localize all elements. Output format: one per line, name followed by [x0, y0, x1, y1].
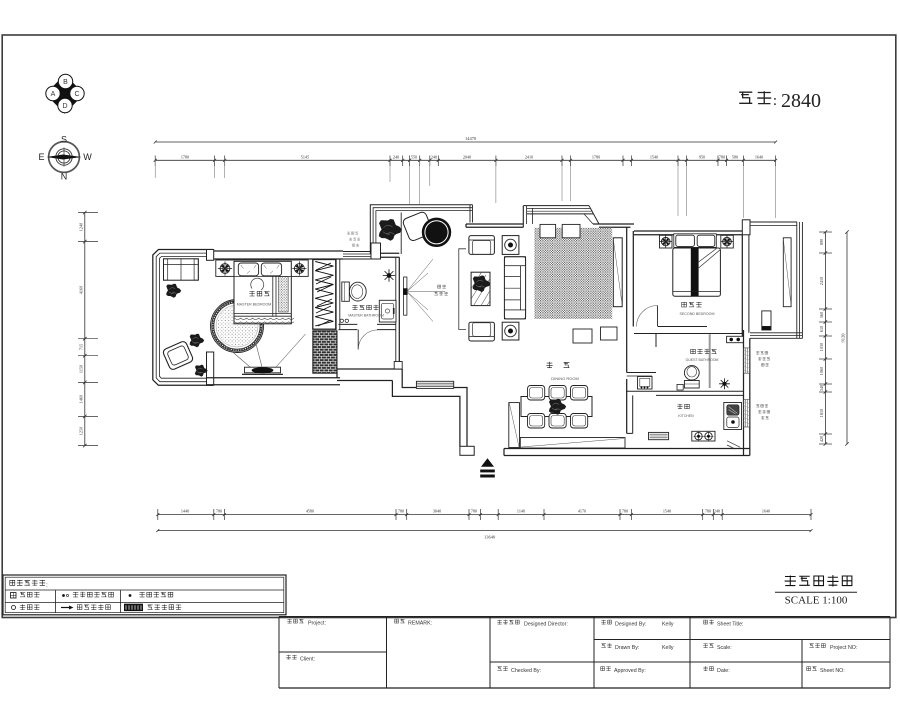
- svg-text:4160: 4160: [79, 286, 84, 294]
- svg-text:610: 610: [819, 326, 824, 332]
- svg-text:1810: 1810: [819, 409, 824, 417]
- svg-text:780: 780: [216, 509, 222, 514]
- svg-text:Sheet Title:: Sheet Title:: [717, 622, 744, 628]
- svg-text:1140: 1140: [517, 509, 525, 514]
- svg-text:1780: 1780: [592, 154, 600, 159]
- svg-text::: :: [46, 582, 48, 589]
- svg-text:1250: 1250: [79, 427, 84, 435]
- svg-text:S: S: [61, 135, 67, 145]
- svg-text:1640: 1640: [762, 509, 770, 514]
- svg-text:W: W: [83, 152, 92, 162]
- svg-text:340: 340: [819, 385, 824, 391]
- svg-text:Checked By:: Checked By:: [511, 668, 541, 674]
- svg-text:5145: 5145: [301, 154, 309, 159]
- svg-text:N: N: [61, 172, 68, 182]
- svg-text:SCALE 1:100: SCALE 1:100: [785, 595, 848, 607]
- svg-text:780: 780: [705, 509, 711, 514]
- svg-text:Project:: Project:: [308, 621, 326, 627]
- svg-text:Scale:: Scale:: [717, 645, 732, 651]
- svg-text:Project NO:: Project NO:: [830, 645, 857, 651]
- svg-text:890: 890: [819, 239, 824, 245]
- svg-text:13640: 13640: [484, 535, 496, 540]
- svg-text:Kelly: Kelly: [662, 622, 674, 628]
- svg-text::: :: [773, 93, 777, 109]
- svg-text:1240: 1240: [79, 223, 84, 231]
- svg-text:240: 240: [393, 154, 399, 159]
- svg-text:MASTER BEDROOM: MASTER BEDROOM: [237, 303, 272, 307]
- svg-text:1540: 1540: [650, 154, 658, 159]
- svg-text:1150: 1150: [79, 365, 84, 373]
- svg-text:1780: 1780: [181, 154, 189, 159]
- svg-text:A: A: [51, 91, 56, 98]
- svg-text:MASTER BATHROOM: MASTER BATHROOM: [348, 314, 384, 318]
- svg-text:DINING ROOM: DINING ROOM: [551, 376, 579, 381]
- svg-text:Sheet NO:: Sheet NO:: [820, 668, 845, 674]
- svg-text:780: 780: [622, 509, 628, 514]
- svg-text:420: 420: [819, 436, 824, 442]
- svg-text:1440: 1440: [181, 509, 189, 514]
- svg-text:560: 560: [819, 312, 824, 318]
- svg-text:Designed By:: Designed By:: [615, 622, 647, 628]
- svg-text:GUEST BATHROOM: GUEST BATHROOM: [686, 358, 719, 362]
- svg-text:1060: 1060: [819, 367, 824, 375]
- svg-text:14470: 14470: [465, 136, 477, 141]
- svg-text:9120: 9120: [841, 333, 846, 343]
- svg-text:B: B: [63, 79, 68, 86]
- svg-text:715: 715: [79, 344, 84, 350]
- svg-text:2840: 2840: [781, 90, 821, 112]
- svg-text:3040: 3040: [433, 509, 441, 514]
- svg-text:Approved By:: Approved By:: [614, 668, 646, 674]
- svg-text:950: 950: [699, 154, 705, 159]
- svg-text:550: 550: [411, 154, 417, 159]
- svg-text:KITCHEN: KITCHEN: [678, 414, 694, 418]
- svg-text:Designed Director:: Designed Director:: [524, 622, 568, 628]
- svg-text:Client:: Client:: [300, 657, 315, 663]
- svg-text:780: 780: [398, 509, 404, 514]
- svg-text:SECOND BEDROOM: SECOND BEDROOM: [680, 312, 715, 316]
- svg-text:780: 780: [719, 154, 725, 159]
- svg-text:Date:: Date:: [717, 668, 730, 674]
- svg-text:Kelly: Kelly: [662, 645, 674, 651]
- svg-text:2040: 2040: [463, 154, 471, 159]
- svg-text:Drawn By:: Drawn By:: [615, 645, 639, 651]
- svg-text:REMARK:: REMARK:: [408, 621, 432, 627]
- svg-text:1540: 1540: [663, 509, 671, 514]
- svg-text:240: 240: [431, 154, 437, 159]
- svg-text:E: E: [38, 152, 44, 162]
- svg-text:240: 240: [714, 509, 720, 514]
- svg-text:580: 580: [732, 154, 738, 159]
- svg-text:780: 780: [471, 509, 477, 514]
- svg-text:D: D: [62, 103, 67, 110]
- svg-text:4170: 4170: [578, 509, 586, 514]
- svg-text:2410: 2410: [525, 154, 533, 159]
- svg-text:1640: 1640: [755, 154, 763, 159]
- svg-text:1460: 1460: [79, 395, 84, 403]
- svg-text:2410: 2410: [819, 277, 824, 285]
- svg-text:4580: 4580: [306, 509, 314, 514]
- svg-text:C: C: [74, 91, 79, 98]
- svg-text:1030: 1030: [819, 343, 824, 351]
